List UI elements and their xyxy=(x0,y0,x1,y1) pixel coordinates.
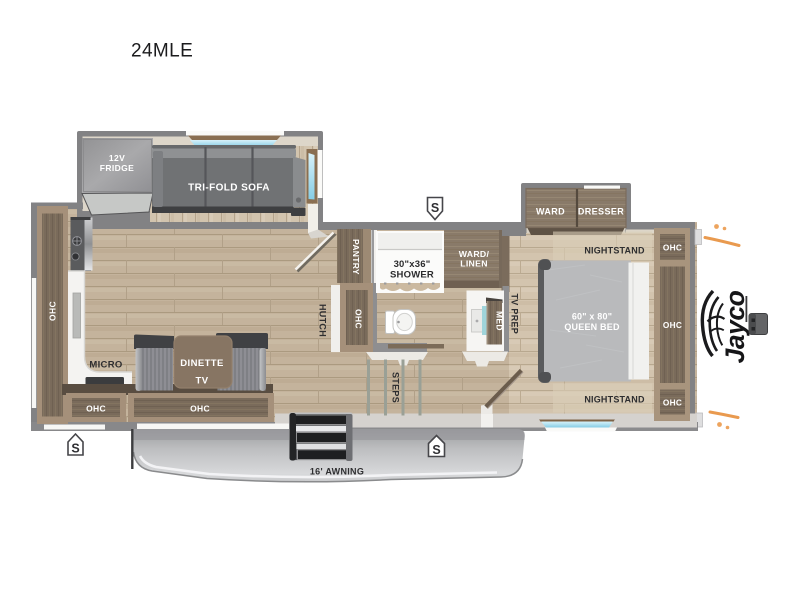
svg-text:S: S xyxy=(432,443,440,457)
svg-text:OHC: OHC xyxy=(190,404,210,414)
svg-text:FRIDGE: FRIDGE xyxy=(100,163,135,173)
svg-text:DINETTE: DINETTE xyxy=(180,358,223,369)
svg-text:24MLE: 24MLE xyxy=(131,41,193,62)
svg-text:MICRO: MICRO xyxy=(89,360,122,371)
svg-text:TV: TV xyxy=(196,376,209,387)
svg-text:TRI-FOLD SOFA: TRI-FOLD SOFA xyxy=(188,183,270,194)
svg-text:60" x 80": 60" x 80" xyxy=(572,312,612,322)
svg-text:OHC: OHC xyxy=(663,243,682,253)
svg-text:OHC: OHC xyxy=(354,309,364,329)
svg-text:STEPS: STEPS xyxy=(391,372,401,403)
svg-text:DRESSER: DRESSER xyxy=(578,207,624,217)
svg-text:WARD: WARD xyxy=(536,207,565,217)
svg-text:MED: MED xyxy=(495,311,505,331)
svg-text:S: S xyxy=(431,201,439,215)
svg-text:WARD/: WARD/ xyxy=(459,249,490,259)
svg-text:NIGHTSTAND: NIGHTSTAND xyxy=(584,246,645,256)
svg-text:SHOWER: SHOWER xyxy=(390,270,434,281)
svg-text:TV PREP: TV PREP xyxy=(510,294,520,335)
svg-text:30"x36": 30"x36" xyxy=(394,259,431,270)
svg-text:OHC: OHC xyxy=(663,320,682,330)
svg-text:OHC: OHC xyxy=(86,404,106,414)
svg-text:16' AWNING: 16' AWNING xyxy=(310,467,364,477)
svg-text:OHC: OHC xyxy=(663,398,682,408)
svg-text:PANTRY: PANTRY xyxy=(351,239,361,275)
svg-text:HUTCH: HUTCH xyxy=(318,304,328,337)
svg-text:QUEEN BED: QUEEN BED xyxy=(564,322,620,332)
svg-text:NIGHTSTAND: NIGHTSTAND xyxy=(584,395,645,405)
svg-text:OHC: OHC xyxy=(48,301,58,321)
svg-text:12V: 12V xyxy=(109,153,125,163)
svg-text:LINEN: LINEN xyxy=(460,259,488,269)
svg-text:S: S xyxy=(71,442,79,456)
